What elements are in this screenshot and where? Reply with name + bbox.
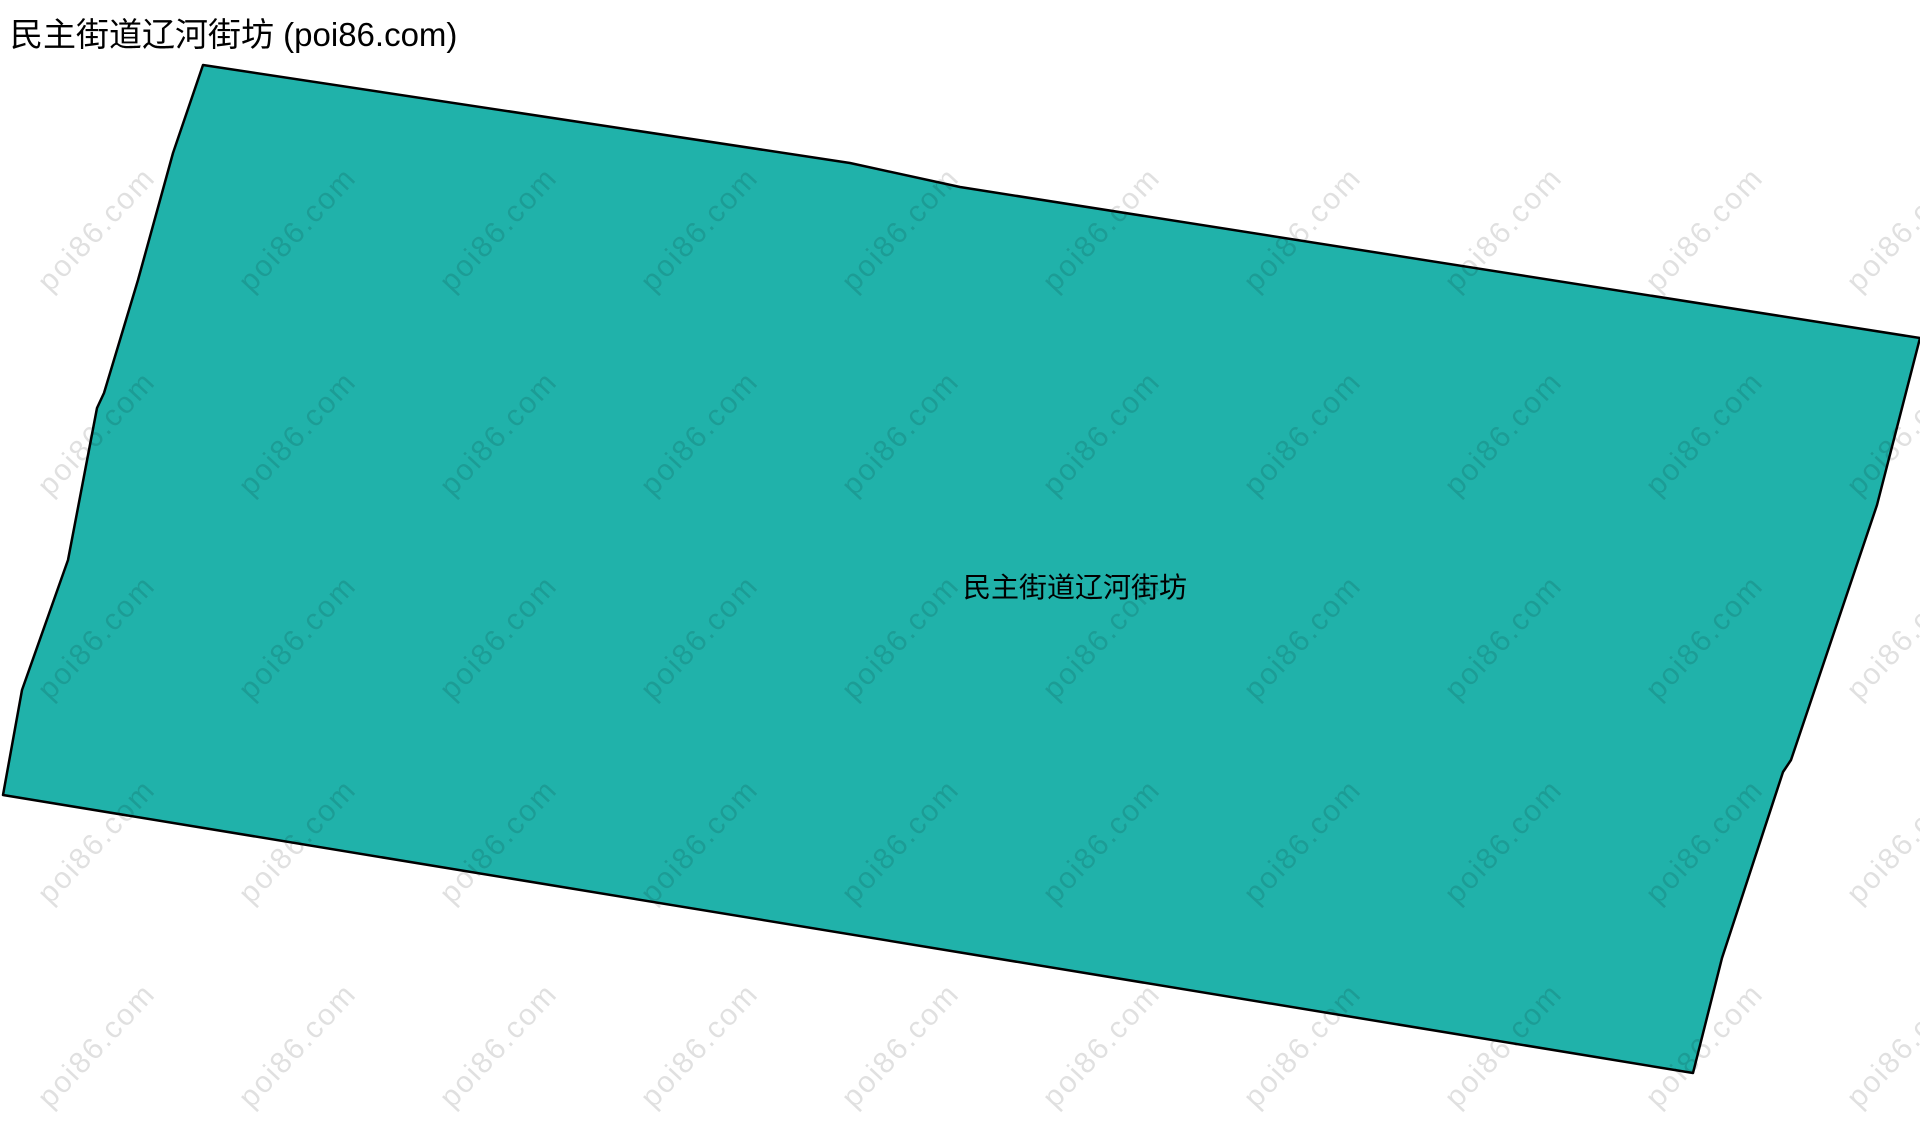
map-canvas	[0, 0, 1920, 1138]
region-label: 民主街道辽河街坊	[963, 566, 1187, 606]
region-polygon	[3, 65, 1920, 1073]
map-page: poi86.compoi86.compoi86.compoi86.compoi8…	[0, 0, 1920, 1138]
page-title: 民主街道辽河街坊 (poi86.com)	[10, 8, 457, 56]
